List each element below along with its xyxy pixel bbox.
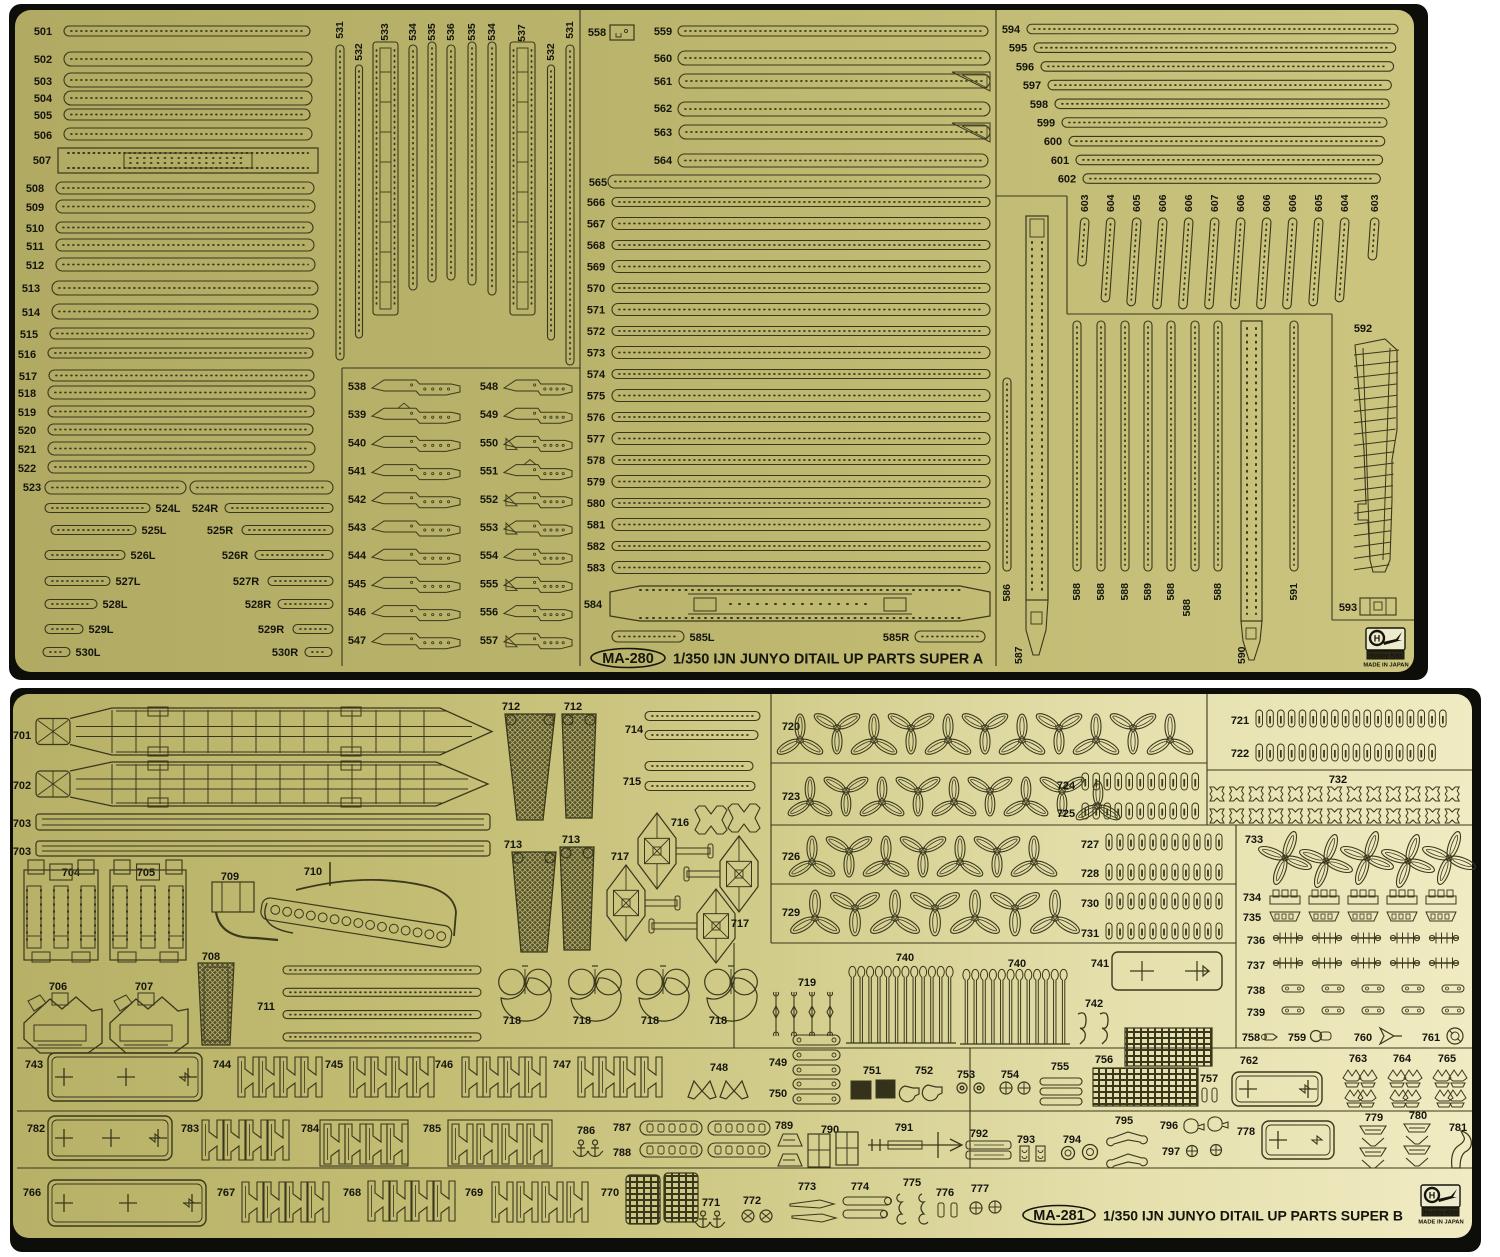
svg-text:503: 503 (34, 76, 52, 88)
svg-text:603: 603 (1079, 194, 1091, 212)
svg-text:718: 718 (641, 1015, 659, 1027)
svg-text:508: 508 (26, 183, 44, 195)
svg-text:519: 519 (18, 407, 36, 419)
svg-text:604: 604 (1105, 194, 1117, 212)
svg-text:786: 786 (577, 1125, 595, 1137)
svg-text:703: 703 (13, 846, 31, 858)
svg-text:524R: 524R (192, 503, 218, 515)
svg-text:578: 578 (587, 455, 605, 467)
svg-text:552: 552 (480, 494, 498, 506)
svg-text:707: 707 (135, 981, 153, 993)
svg-text:540: 540 (348, 437, 366, 449)
svg-text:509: 509 (26, 202, 44, 214)
svg-text:605: 605 (1313, 194, 1325, 212)
svg-text:738: 738 (1247, 985, 1265, 997)
svg-text:529L: 529L (88, 624, 113, 636)
svg-text:735: 735 (1243, 912, 1261, 924)
svg-text:743: 743 (25, 1059, 43, 1071)
svg-text:597: 597 (1023, 80, 1041, 92)
svg-text:766: 766 (23, 1187, 41, 1199)
svg-text:Hobby Kits: Hobby Kits (1423, 1210, 1458, 1217)
svg-text:520: 520 (18, 425, 36, 437)
svg-text:530R: 530R (272, 647, 298, 659)
svg-text:523: 523 (23, 482, 41, 494)
svg-text:793: 793 (1017, 1134, 1035, 1146)
svg-text:571: 571 (587, 305, 605, 317)
svg-text:762: 762 (1240, 1055, 1258, 1067)
svg-text:MADE IN JAPAN: MADE IN JAPAN (1418, 1220, 1463, 1226)
svg-text:507: 507 (33, 155, 51, 167)
svg-text:733: 733 (1245, 834, 1263, 846)
svg-text:501: 501 (34, 26, 52, 38)
svg-text:527R: 527R (233, 576, 259, 588)
svg-text:606: 606 (1287, 194, 1299, 212)
svg-text:560: 560 (654, 53, 672, 65)
svg-text:575: 575 (587, 391, 605, 403)
svg-text:755: 755 (1051, 1061, 1069, 1073)
svg-text:723: 723 (782, 791, 800, 803)
svg-text:559: 559 (654, 26, 672, 38)
svg-text:769: 769 (465, 1187, 483, 1199)
svg-text:783: 783 (181, 1123, 199, 1135)
svg-text:756: 756 (1095, 1054, 1113, 1066)
svg-text:524L: 524L (155, 503, 180, 515)
svg-text:753: 753 (957, 1069, 975, 1081)
svg-text:531: 531 (564, 21, 576, 39)
svg-text:536: 536 (445, 23, 457, 41)
svg-text:718: 718 (573, 1015, 591, 1027)
svg-text:601: 601 (1051, 155, 1069, 167)
svg-text:736: 736 (1247, 935, 1265, 947)
svg-text:577: 577 (587, 434, 605, 446)
svg-text:558: 558 (588, 27, 606, 39)
svg-text:788: 788 (613, 1147, 631, 1159)
svg-text:754: 754 (1001, 1069, 1020, 1081)
svg-text:767: 767 (217, 1187, 235, 1199)
svg-text:725: 725 (1057, 808, 1075, 820)
svg-text:MA-281: MA-281 (1033, 1208, 1085, 1224)
svg-text:518: 518 (18, 388, 36, 400)
svg-text:533: 533 (379, 23, 391, 41)
svg-text:757: 757 (1200, 1073, 1218, 1085)
svg-text:588: 588 (1119, 583, 1131, 601)
svg-text:715: 715 (623, 776, 641, 788)
svg-text:759: 759 (1288, 1032, 1306, 1044)
svg-text:599: 599 (1037, 118, 1055, 130)
svg-text:586: 586 (1001, 584, 1013, 602)
svg-text:714: 714 (625, 724, 644, 736)
svg-text:702: 702 (13, 780, 31, 792)
svg-text:785: 785 (423, 1123, 441, 1135)
svg-text:566: 566 (587, 197, 605, 209)
svg-text:606: 606 (1183, 194, 1195, 212)
svg-text:773: 773 (798, 1181, 816, 1193)
svg-text:553: 553 (480, 522, 498, 534)
svg-text:784: 784 (301, 1123, 320, 1135)
svg-text:729: 729 (782, 907, 800, 919)
svg-text:752: 752 (915, 1065, 933, 1077)
svg-text:574: 574 (587, 369, 606, 381)
svg-text:582: 582 (587, 541, 605, 553)
svg-text:542: 542 (348, 494, 366, 506)
svg-text:701: 701 (13, 730, 31, 742)
svg-text:MADE IN JAPAN: MADE IN JAPAN (1363, 663, 1408, 669)
svg-text:750: 750 (769, 1088, 787, 1100)
svg-text:705: 705 (137, 867, 155, 879)
svg-text:722: 722 (1231, 748, 1249, 760)
svg-text:572: 572 (587, 326, 605, 338)
svg-text:573: 573 (587, 348, 605, 360)
svg-text:561: 561 (654, 76, 672, 88)
svg-text:535: 535 (426, 23, 438, 41)
svg-text:585L: 585L (689, 632, 714, 644)
svg-text:711: 711 (257, 1001, 275, 1013)
svg-text:528R: 528R (245, 599, 271, 611)
svg-text:1/350 IJN JUNYO DITAIL UP PART: 1/350 IJN JUNYO DITAIL UP PARTS SUPER A (673, 652, 984, 668)
svg-text:506: 506 (34, 130, 52, 142)
svg-text:791: 791 (895, 1122, 913, 1134)
svg-text:603: 603 (1369, 194, 1381, 212)
svg-text:548: 548 (480, 381, 498, 393)
svg-text:516: 516 (18, 349, 36, 361)
svg-text:741: 741 (1091, 958, 1109, 970)
svg-text:708: 708 (202, 951, 220, 963)
svg-text:703: 703 (13, 818, 31, 830)
svg-text:744: 744 (213, 1059, 232, 1071)
svg-text:742: 742 (1085, 998, 1103, 1010)
svg-text:761: 761 (1422, 1032, 1440, 1044)
svg-text:546: 546 (348, 607, 366, 619)
svg-text:505: 505 (34, 110, 52, 122)
svg-text:514: 514 (22, 307, 41, 319)
svg-text:606: 606 (1261, 194, 1273, 212)
svg-text:568: 568 (587, 240, 605, 252)
svg-text:MA-280: MA-280 (602, 651, 654, 667)
svg-text:797: 797 (1162, 1146, 1180, 1158)
svg-text:717: 717 (731, 918, 749, 930)
svg-text:530L: 530L (75, 647, 100, 659)
svg-text:510: 510 (26, 223, 44, 235)
svg-text:740: 740 (1008, 958, 1026, 970)
svg-text:712: 712 (564, 701, 582, 713)
svg-text:726: 726 (782, 851, 800, 863)
svg-text:589: 589 (1142, 583, 1154, 601)
svg-text:517: 517 (19, 371, 37, 383)
svg-text:587: 587 (1013, 646, 1025, 664)
svg-text:717: 717 (611, 851, 629, 863)
svg-text:557: 557 (480, 635, 498, 647)
svg-text:1/350 IJN JUNYO DITAIL UP PART: 1/350 IJN JUNYO DITAIL UP PARTS SUPER B (1103, 1208, 1403, 1224)
svg-text:776: 776 (936, 1187, 954, 1199)
svg-text:584: 584 (584, 599, 603, 611)
svg-text:606: 606 (1235, 194, 1247, 212)
svg-text:581: 581 (587, 520, 605, 532)
svg-text:795: 795 (1115, 1115, 1133, 1127)
svg-text:732: 732 (1329, 774, 1347, 786)
svg-text:H: H (1374, 634, 1381, 644)
svg-text:706: 706 (49, 981, 67, 993)
svg-text:547: 547 (348, 635, 366, 647)
svg-text:727: 727 (1081, 839, 1099, 851)
svg-text:511: 511 (26, 241, 44, 253)
svg-text:792: 792 (970, 1128, 988, 1140)
svg-text:537: 537 (516, 24, 528, 42)
svg-text:740: 740 (896, 952, 914, 964)
svg-text:504: 504 (34, 93, 53, 105)
svg-text:748: 748 (710, 1062, 728, 1074)
svg-text:745: 745 (325, 1059, 343, 1071)
svg-text:593: 593 (1339, 602, 1357, 614)
svg-text:588: 588 (1071, 583, 1083, 601)
svg-text:737: 737 (1247, 960, 1265, 972)
svg-text:772: 772 (743, 1195, 761, 1207)
svg-text:539: 539 (348, 409, 366, 421)
svg-text:606: 606 (1157, 194, 1169, 212)
svg-text:527L: 527L (115, 576, 140, 588)
svg-text:724: 724 (1057, 780, 1076, 792)
svg-text:563: 563 (654, 127, 672, 139)
svg-text:528L: 528L (102, 599, 127, 611)
svg-text:731: 731 (1081, 928, 1099, 940)
svg-text:730: 730 (1081, 898, 1099, 910)
svg-text:521: 521 (18, 444, 36, 456)
svg-text:794: 794 (1063, 1134, 1082, 1146)
svg-text:605: 605 (1131, 194, 1143, 212)
svg-text:716: 716 (671, 817, 689, 829)
svg-text:512: 512 (26, 260, 44, 272)
svg-text:775: 775 (903, 1177, 921, 1189)
svg-text:538: 538 (348, 381, 366, 393)
svg-text:720: 720 (782, 721, 800, 733)
svg-text:535: 535 (466, 23, 478, 41)
svg-text:749: 749 (769, 1057, 787, 1069)
svg-text:585R: 585R (883, 632, 909, 644)
svg-text:596: 596 (1016, 61, 1034, 73)
svg-text:526R: 526R (222, 550, 248, 562)
svg-text:604: 604 (1339, 194, 1351, 212)
svg-text:718: 718 (503, 1015, 521, 1027)
svg-text:531: 531 (334, 21, 346, 39)
svg-text:529R: 529R (258, 624, 284, 636)
svg-text:570: 570 (587, 283, 605, 295)
svg-text:594: 594 (1002, 24, 1021, 36)
svg-text:502: 502 (34, 54, 52, 66)
svg-text:H: H (1429, 1191, 1436, 1201)
svg-text:513: 513 (22, 283, 40, 295)
svg-text:543: 543 (348, 522, 366, 534)
svg-text:532: 532 (545, 43, 557, 61)
svg-text:554: 554 (480, 550, 499, 562)
svg-text:739: 739 (1247, 1007, 1265, 1019)
svg-text:777: 777 (971, 1183, 989, 1195)
svg-text:555: 555 (480, 578, 498, 590)
svg-text:534: 534 (486, 23, 498, 41)
svg-text:541: 541 (348, 466, 366, 478)
svg-text:760: 760 (1354, 1032, 1372, 1044)
svg-text:718: 718 (709, 1015, 727, 1027)
svg-text:751: 751 (863, 1065, 881, 1077)
svg-text:747: 747 (553, 1059, 571, 1071)
svg-text:588: 588 (1095, 583, 1107, 601)
svg-text:562: 562 (654, 103, 672, 115)
svg-text:Hobby Kits: Hobby Kits (1368, 653, 1403, 660)
svg-text:796: 796 (1160, 1120, 1178, 1132)
svg-text:774: 774 (851, 1181, 870, 1193)
svg-text:789: 789 (775, 1120, 793, 1132)
svg-text:721: 721 (1231, 715, 1249, 727)
svg-text:780: 780 (1409, 1110, 1427, 1122)
svg-text:719: 719 (798, 977, 816, 989)
svg-text:551: 551 (480, 466, 498, 478)
svg-text:758: 758 (1242, 1032, 1260, 1044)
svg-text:525R: 525R (207, 525, 233, 537)
svg-text:564: 564 (654, 155, 673, 167)
svg-text:545: 545 (348, 578, 366, 590)
svg-text:576: 576 (587, 412, 605, 424)
svg-text:765: 765 (1438, 1053, 1456, 1065)
svg-text:522: 522 (18, 463, 36, 475)
svg-text:588: 588 (1165, 583, 1177, 601)
svg-text:746: 746 (435, 1059, 453, 1071)
svg-text:771: 771 (702, 1197, 720, 1209)
svg-text:591: 591 (1288, 583, 1300, 601)
svg-text:550: 550 (480, 437, 498, 449)
svg-text:583: 583 (587, 563, 605, 575)
svg-text:598: 598 (1030, 99, 1048, 111)
svg-text:579: 579 (587, 477, 605, 489)
svg-text:595: 595 (1009, 43, 1027, 55)
svg-text:525L: 525L (141, 525, 166, 537)
svg-text:565: 565 (589, 177, 607, 189)
svg-text:556: 556 (480, 607, 498, 619)
svg-text:515: 515 (20, 329, 38, 341)
svg-text:713: 713 (562, 834, 580, 846)
svg-text:782: 782 (27, 1123, 45, 1135)
svg-text:534: 534 (407, 23, 419, 41)
svg-text:734: 734 (1243, 892, 1262, 904)
svg-text:728: 728 (1081, 868, 1099, 880)
svg-text:590: 590 (1236, 646, 1248, 664)
svg-text:778: 778 (1237, 1126, 1255, 1138)
svg-text:768: 768 (343, 1187, 361, 1199)
svg-text:588: 588 (1212, 583, 1224, 601)
svg-text:764: 764 (1393, 1053, 1412, 1065)
svg-text:787: 787 (613, 1122, 631, 1134)
svg-text:580: 580 (587, 498, 605, 510)
svg-text:607: 607 (1209, 194, 1221, 212)
svg-text:713: 713 (504, 839, 522, 851)
svg-text:709: 709 (221, 871, 239, 883)
svg-text:710: 710 (304, 866, 322, 878)
svg-text:532: 532 (353, 43, 365, 61)
svg-text:712: 712 (502, 701, 520, 713)
svg-text:526L: 526L (130, 550, 155, 562)
svg-text:569: 569 (587, 262, 605, 274)
svg-text:600: 600 (1044, 136, 1062, 148)
svg-text:779: 779 (1365, 1112, 1383, 1124)
svg-text:592: 592 (1354, 323, 1372, 335)
svg-text:770: 770 (601, 1187, 619, 1199)
svg-text:602: 602 (1058, 174, 1076, 186)
svg-text:567: 567 (587, 219, 605, 231)
svg-text:763: 763 (1349, 1053, 1367, 1065)
svg-text:549: 549 (480, 409, 498, 421)
svg-text:544: 544 (348, 550, 367, 562)
svg-text:588: 588 (1181, 599, 1193, 617)
